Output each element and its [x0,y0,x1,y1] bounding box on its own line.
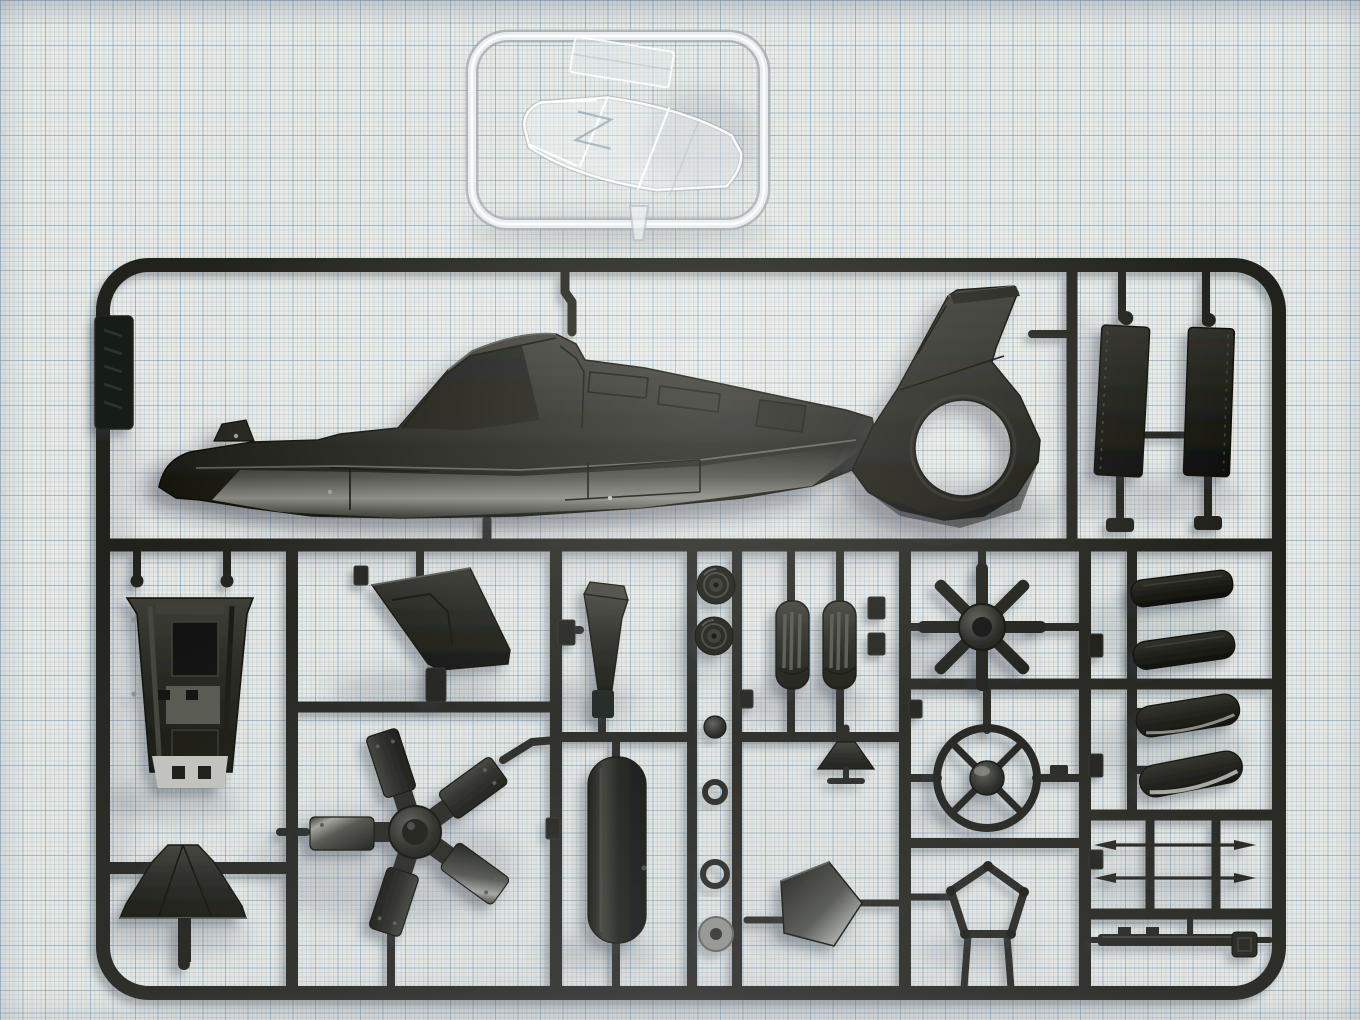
sprue-drawing [0,0,1360,1020]
hub-fairing [818,742,874,781]
stub-wing-panel-right [1183,312,1235,477]
stub-wing-panel-left [1094,310,1151,477]
cockpit-tub [127,598,253,788]
strut-a [776,601,809,689]
wheel-b [695,617,733,655]
pitot-probe-1 [1094,840,1256,850]
photo-model-kit-sprues [0,0,1360,1020]
pentagon-frame [946,861,1029,939]
ring-mid [703,862,727,886]
clear-window-panel [570,36,674,87]
name-plate [95,316,133,429]
tank-cylinder [588,757,647,943]
ball-joint [704,716,726,738]
washer-grey [699,917,733,951]
fenestron-fan [918,563,1046,691]
wheel-a [697,566,735,604]
corner-block [1232,932,1257,957]
clear-sprue [472,36,764,240]
ring-small [705,782,725,802]
fuselage-half [159,334,876,518]
strut-b [823,601,856,689]
clear-canopy [515,69,750,216]
